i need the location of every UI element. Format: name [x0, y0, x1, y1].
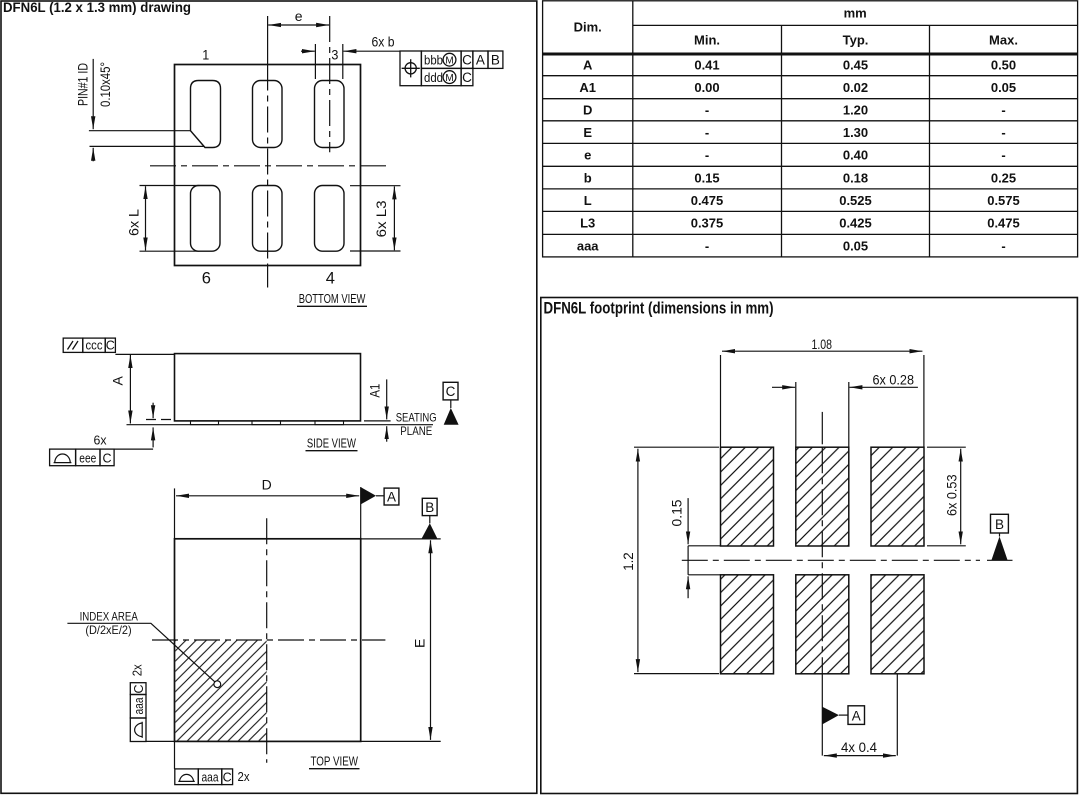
svg-text:0.05: 0.05: [843, 238, 868, 253]
svg-text:SIDE VIEW: SIDE VIEW: [307, 437, 356, 451]
svg-text:C: C: [106, 339, 115, 353]
svg-text:Min.: Min.: [694, 33, 720, 48]
svg-text:0.41: 0.41: [694, 58, 719, 73]
svg-text:C: C: [446, 384, 456, 399]
svg-text:L3: L3: [580, 216, 595, 231]
svg-text:C: C: [462, 53, 472, 68]
svg-text:0.10x45°: 0.10x45°: [97, 62, 113, 107]
svg-text:0.475: 0.475: [691, 193, 724, 208]
svg-text:bbb: bbb: [424, 54, 443, 68]
svg-text:2x: 2x: [238, 770, 251, 784]
svg-text:0.15: 0.15: [669, 499, 685, 526]
svg-text:1.08: 1.08: [812, 336, 833, 352]
svg-text:C: C: [102, 451, 111, 465]
svg-text:TOP VIEW: TOP VIEW: [311, 755, 359, 769]
svg-text:DFN6L (1.2 x 1.3 mm) drawing: DFN6L (1.2 x 1.3 mm) drawing: [3, 0, 191, 15]
svg-text:0.45: 0.45: [843, 58, 868, 73]
svg-text:0.18: 0.18: [843, 170, 868, 185]
svg-text:E: E: [412, 639, 428, 648]
svg-text:-: -: [705, 125, 709, 140]
svg-text:BOTTOM VIEW: BOTTOM VIEW: [299, 292, 366, 306]
svg-text:D: D: [583, 103, 592, 118]
svg-text:1.20: 1.20: [843, 103, 868, 118]
svg-text:6x L3: 6x L3: [373, 200, 389, 237]
svg-text:A1: A1: [367, 383, 383, 397]
svg-text:D: D: [262, 477, 272, 493]
svg-text:M: M: [445, 56, 453, 67]
svg-text:0.25: 0.25: [991, 170, 1016, 185]
svg-text:0.00: 0.00: [694, 80, 719, 95]
svg-text:PLANE: PLANE: [400, 424, 432, 438]
svg-text:mm: mm: [844, 6, 867, 21]
svg-text:A: A: [387, 490, 396, 505]
svg-text:A: A: [110, 376, 126, 386]
svg-text:1.30: 1.30: [843, 125, 868, 140]
svg-text:A1: A1: [579, 80, 596, 95]
svg-text:0.15: 0.15: [694, 170, 719, 185]
svg-text:6x L: 6x L: [126, 209, 142, 236]
svg-text:PIN#1 ID: PIN#1 ID: [75, 63, 91, 106]
svg-text:C: C: [462, 70, 472, 85]
svg-text:e: e: [295, 8, 303, 24]
svg-text:C: C: [132, 684, 146, 693]
svg-text:(D/2xE/2): (D/2xE/2): [85, 623, 131, 637]
svg-text:DFN6L footprint (dimensions in: DFN6L footprint (dimensions in mm): [544, 300, 774, 318]
svg-text:6: 6: [202, 270, 211, 288]
svg-text:B: B: [491, 53, 500, 68]
svg-text:eee: eee: [79, 451, 96, 465]
svg-text:ddd: ddd: [424, 71, 443, 85]
svg-text:6x 0.28: 6x 0.28: [873, 372, 915, 388]
svg-text:Typ.: Typ.: [843, 33, 869, 48]
svg-text:aaa: aaa: [577, 238, 599, 253]
svg-text:SEATING: SEATING: [396, 411, 437, 425]
svg-text:aaa: aaa: [202, 771, 219, 785]
svg-text:1.2: 1.2: [620, 552, 636, 571]
svg-text:Max.: Max.: [989, 33, 1018, 48]
svg-text:0.375: 0.375: [691, 216, 724, 231]
svg-text:0.05: 0.05: [991, 80, 1016, 95]
svg-text:-: -: [705, 238, 709, 253]
svg-text:C: C: [223, 771, 232, 785]
svg-text:b: b: [584, 170, 592, 185]
svg-text:1: 1: [202, 47, 209, 63]
svg-text:E: E: [583, 125, 592, 140]
svg-text:e: e: [584, 148, 591, 163]
svg-text:A: A: [583, 58, 593, 73]
svg-text:INDEX AREA: INDEX AREA: [80, 609, 138, 623]
svg-text:A: A: [476, 53, 485, 68]
svg-text:6x b: 6x b: [372, 34, 395, 50]
svg-text:L: L: [584, 193, 592, 208]
svg-text:6x: 6x: [94, 433, 108, 447]
svg-text:-: -: [1001, 103, 1005, 118]
svg-text:0.475: 0.475: [987, 216, 1020, 231]
svg-text:0.525: 0.525: [839, 193, 872, 208]
svg-text:-: -: [705, 148, 709, 163]
svg-text:M: M: [445, 73, 453, 84]
svg-text:2x: 2x: [131, 664, 145, 677]
svg-text:0.50: 0.50: [991, 58, 1016, 73]
svg-text:6x 0.53: 6x 0.53: [944, 474, 960, 516]
svg-text:0.575: 0.575: [987, 193, 1020, 208]
svg-text:-: -: [705, 103, 709, 118]
svg-text:-: -: [1001, 148, 1005, 163]
svg-text:B: B: [425, 500, 434, 515]
svg-text:4: 4: [326, 270, 335, 288]
svg-text:-: -: [1001, 238, 1005, 253]
svg-text:0.425: 0.425: [839, 216, 872, 231]
svg-text:0.02: 0.02: [843, 80, 868, 95]
svg-text:aaa: aaa: [132, 697, 146, 714]
svg-text:0.40: 0.40: [843, 148, 868, 163]
svg-text:A: A: [852, 709, 861, 724]
svg-text:3: 3: [331, 47, 338, 63]
svg-text:B: B: [995, 517, 1004, 532]
svg-text:4x 0.4: 4x 0.4: [841, 739, 877, 755]
svg-text:ccc: ccc: [86, 339, 103, 353]
svg-text:-: -: [1001, 125, 1005, 140]
svg-text:Dim.: Dim.: [574, 20, 602, 35]
